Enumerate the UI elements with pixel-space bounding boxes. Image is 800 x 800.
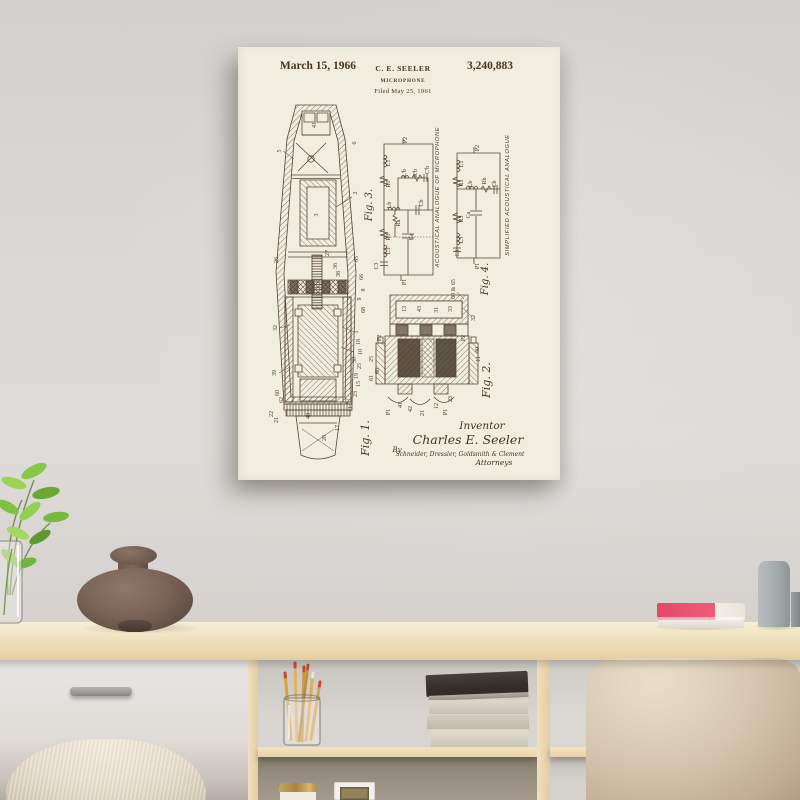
ref-numeral: 47 [345,398,351,404]
ref-numeral: 18 [356,339,362,345]
ref-numeral: 36 [333,263,339,269]
ref-numeral: P1 [386,409,392,415]
fig3-caption: ACOUSTICAL ANALOGUE OF MICROPHONE [435,127,441,269]
pencil-cup [276,657,326,748]
ref-numeral: R1 [386,180,392,187]
room-scene: March 15, 1966 C. E. SEELER 3,240,883 MI… [0,0,800,800]
ref-numeral: 5 [277,150,283,153]
cream-book-3 [431,730,528,747]
glass-cup [284,695,320,745]
ref-numeral: 61 [369,375,375,381]
cabinet-divider-left [248,660,258,800]
velvet-pouf [586,658,800,800]
fig2-drawing [376,292,478,405]
stacked-books-pink [657,603,745,628]
ref-numeral: L'b [402,169,408,177]
patent-poster: March 15, 1966 C. E. SEELER 3,240,883 MI… [238,47,560,480]
ref-numeral: 25 [357,363,363,369]
ref-numeral: 30 [352,357,358,363]
ref-numeral: 60 [375,368,381,374]
fig2-label: Fig. 2. [480,362,493,399]
picture-frame-art [340,787,369,800]
ref-numeral: P2 [403,137,409,143]
ref-numeral: 32 [471,315,477,321]
ref-numeral: P2 [377,335,383,341]
ref-numeral: 60 [275,390,281,396]
potted-plant [0,445,76,631]
ref-numeral: 66 [359,274,365,280]
ref-numeral: Lb [468,181,474,188]
fig3-drawing [380,138,433,281]
cream-book-2 [427,715,529,729]
ref-numeral: 23 [353,391,359,397]
ref-numeral: C3 [455,249,461,256]
fig1-drawing [276,105,356,459]
patent-drawing: 4156232627363865668968118103025191523471… [238,47,560,480]
ref-numeral: 6 [352,142,358,145]
ref-numeral: 9 [357,298,363,301]
ref-numeral: L3 [459,237,465,244]
ref-numeral: C'b [425,166,431,174]
ref-numeral: 41 [312,122,318,128]
ref-numeral: 11 [348,406,354,412]
ref-numeral: 68 [361,307,367,313]
small-picture-frame [334,782,375,800]
ref-numeral: 40 [475,347,481,353]
ref-numeral: 26 [274,257,280,263]
ref-numeral: 11 [476,356,482,362]
white-book [658,620,744,628]
ref-numeral: Lb [387,202,393,209]
ref-numeral: R3 [459,215,465,222]
ref-numeral: 17 [335,425,341,431]
fig4-ref-labels: P2L1R1LbRbCbCaR3L3C3P1 [455,145,498,269]
ref-numeral: 13 [402,306,408,312]
vase-foot [118,620,152,632]
ref-numeral: P2 [461,335,467,341]
ref-numeral: 43 [417,306,423,312]
ref-numeral: 12 [434,403,440,409]
ref-numeral: 1 [354,331,360,334]
ref-numeral: 28 [322,435,328,441]
ref-numeral: 10 [358,349,364,355]
ref-numeral: 38 [336,271,342,277]
ref-numeral: P2 [475,145,481,151]
gray-cylinder-vase-small [791,592,800,627]
fig3-label: Fig. 3. [364,189,375,222]
pink-book [657,603,745,620]
signature-inventor-name: Charles E. Seeler [413,432,525,447]
ref-numeral: 3 [314,214,320,217]
ref-numeral: Ra [396,219,402,226]
candle-jar [279,783,317,800]
ref-numeral: 48 [306,413,312,419]
ref-numeral: 41 [398,402,404,408]
cream-book-1 [429,700,528,714]
ref-numeral: Ca [466,211,472,218]
ref-numeral: 21 [274,417,280,423]
gray-cylinder-vase [758,561,790,627]
stacked-books-shelf [424,671,531,747]
fig4-caption: SIMPLIFIED ACOUSTICAL ANALOGUE [505,134,511,256]
ref-numeral: 27 [325,250,331,256]
candle-jar-lid [279,783,317,792]
ref-numeral: 42 [408,406,414,412]
fig4-label: Fig. 4. [480,263,491,296]
ref-numeral: R3 [386,233,392,240]
ref-numeral: 8 [361,289,367,292]
ref-numeral: P1 [402,279,408,285]
glass-vase [0,541,22,623]
ref-numeral: P1 [443,409,449,415]
ref-numeral: C3 [374,262,380,269]
ref-numeral: 33 [448,306,454,312]
ref-numeral: R1 [459,179,465,186]
ref-numeral: R'b [413,169,419,177]
drawer-handle [70,687,132,696]
ref-numeral: L1 [459,161,465,168]
ref-numeral: 21 [420,410,426,416]
ref-numeral: Cb [492,180,498,187]
ref-numeral: 2 [353,192,359,195]
ref-numeral: 25 [369,356,375,362]
signature-firm: Schneider, Dressler, Goldsmith & Clement [396,451,525,458]
fig1-label: Fig. 1. [359,420,372,457]
candle-jar-body [280,792,316,800]
ref-numeral: Rb [482,177,488,184]
ref-numeral: 22 [269,411,275,417]
ref-numeral: 62 [279,397,285,403]
ref-numeral: Cb [419,199,425,206]
ref-numeral: 31 [434,307,440,313]
fig3-ref-labels: P2L1R1L'bR'bC'bLbCbRaR3CaL3C3P1 [374,137,431,285]
signature-inventor-label: Inventor [458,420,505,432]
cabinet-divider-right [537,660,550,800]
ref-numeral: 39 [272,370,278,376]
ref-numeral: 23 [448,396,454,402]
ref-numeral: 15 [356,381,362,387]
ref-numeral: Ca [409,233,415,240]
dark-book [426,671,529,697]
ref-numeral: 19 [354,373,360,379]
ref-numeral: 32 [273,325,279,331]
ref-numeral: 65 [354,256,360,262]
ref-numeral: 60 & 65 [451,279,457,299]
brown-ceramic-vase [77,546,193,632]
signature-attorneys-label: Attorneys [475,458,513,467]
shelf-board-left [258,747,537,757]
vase-knob [110,546,157,565]
ref-numeral: L3 [386,248,392,255]
ref-numeral: L1 [386,160,392,167]
